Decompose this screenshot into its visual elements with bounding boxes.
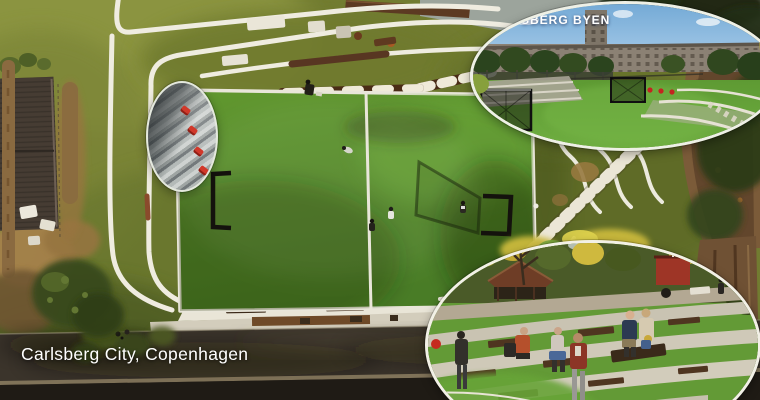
carlsberg-byen-sign: SBERG BYEN bbox=[521, 13, 610, 27]
red-seat bbox=[198, 165, 209, 176]
inset-photo-terrace-seating bbox=[425, 240, 760, 400]
inset-photo-red-seats bbox=[146, 81, 218, 192]
inset-goal-left bbox=[481, 90, 531, 130]
location-caption: Carlsberg City, Copenhagen bbox=[21, 344, 248, 365]
red-seat bbox=[180, 105, 191, 116]
red-seat bbox=[193, 146, 204, 157]
red-seat bbox=[187, 125, 198, 136]
terrace-art bbox=[428, 243, 758, 400]
street-view-art bbox=[473, 4, 760, 148]
inset-goal-center bbox=[611, 78, 645, 102]
slide-carlsberg-park: SBERG BYEN bbox=[0, 0, 760, 400]
inset-photo-street-view: SBERG BYEN bbox=[470, 1, 760, 151]
